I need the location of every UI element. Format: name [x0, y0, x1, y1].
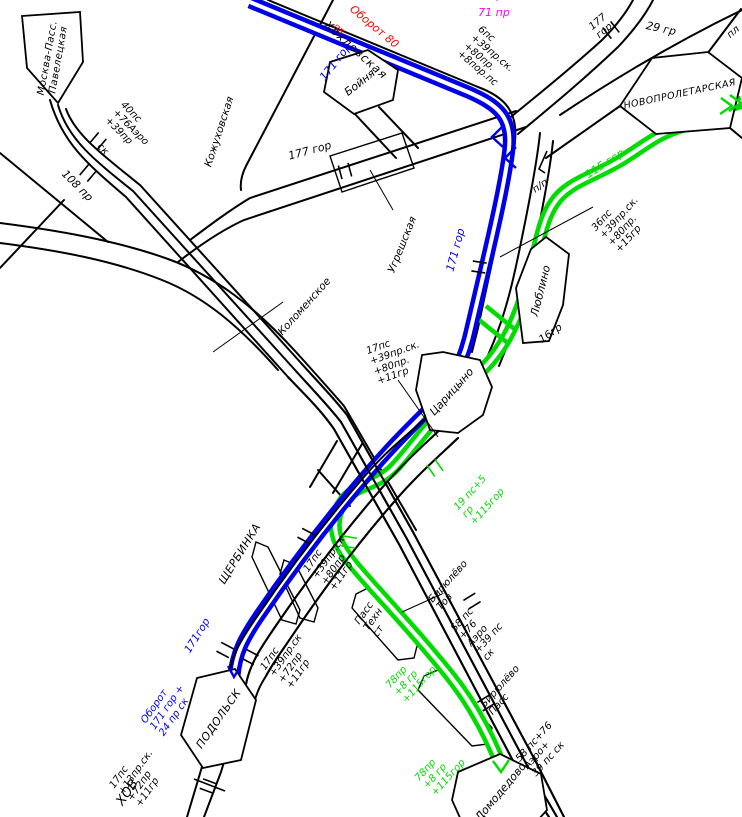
lyublino-polygon	[516, 237, 569, 343]
station-polygons	[22, 12, 742, 817]
black-tracks	[0, 0, 742, 817]
route-arrows	[228, 95, 741, 772]
railway-scheme: Москва-Пасс. Павелецкая Бойня НОВОПРОЛЕТ…	[0, 0, 742, 817]
track-ticks	[80, 21, 620, 793]
podolsk-polygon	[181, 669, 256, 768]
railway-scheme-canvas	[0, 0, 742, 817]
ugreshskaya-platform	[330, 133, 414, 192]
novoproletarskaya-polygon	[620, 52, 742, 134]
moskva-pass-polygon	[22, 12, 83, 103]
tsaritsyno-polygon	[416, 352, 492, 433]
domodedovo-polygon	[452, 754, 547, 817]
pp-hook	[539, 151, 547, 173]
